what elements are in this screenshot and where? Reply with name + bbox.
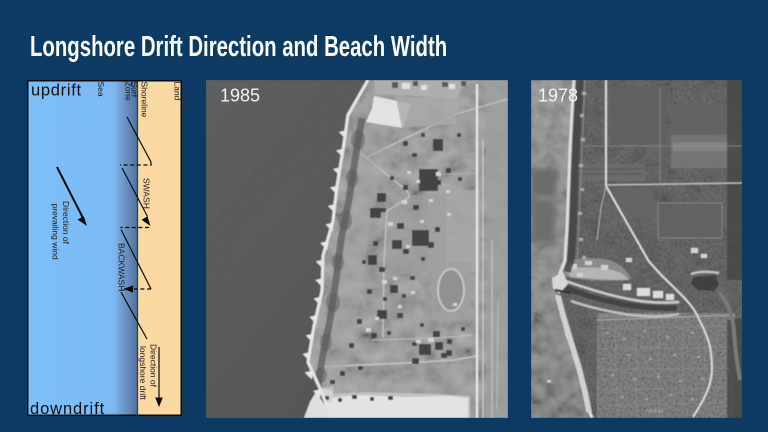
svg-text:updrift: updrift (31, 82, 82, 100)
svg-text:SWASH: SWASH (142, 178, 152, 209)
svg-text:78-434: 78-434 (645, 409, 664, 415)
svg-text:1985: 1985 (220, 86, 260, 106)
svg-text:Land: Land (173, 82, 183, 101)
svg-text:1978: 1978 (538, 86, 578, 106)
svg-text:Shoreline: Shoreline (140, 82, 150, 118)
svg-text:Sea: Sea (96, 82, 106, 97)
svg-text:BACKWASH: BACKWASH (117, 243, 127, 291)
svg-text:downdrift: downdrift (30, 400, 105, 416)
svg-text:Zone: Zone (124, 82, 134, 102)
